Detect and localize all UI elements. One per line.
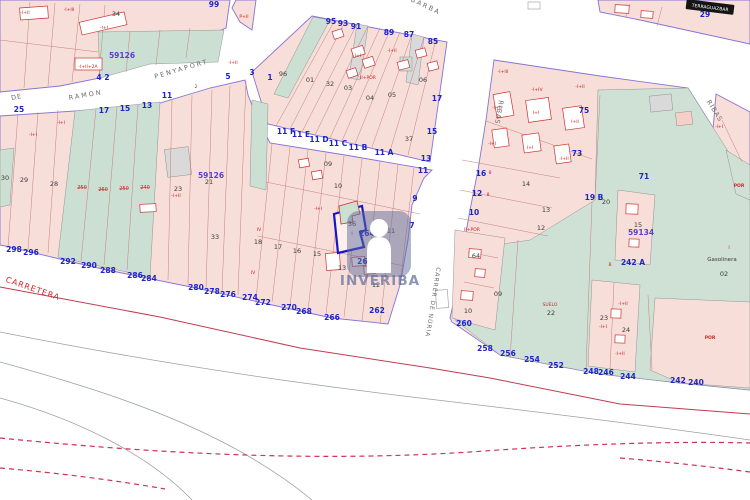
- map-label: 240: [140, 185, 150, 191]
- map-label: 250: [119, 186, 129, 192]
- map-label: 23: [600, 314, 608, 322]
- street-name-barba: BARBA: [410, 0, 443, 17]
- map-label: 288: [100, 266, 116, 275]
- map-label: 85: [428, 37, 438, 46]
- poi-gasolinera: Gasolinera: [707, 257, 736, 263]
- map-label: 25: [14, 105, 24, 114]
- map-label: 266: [324, 313, 340, 322]
- map-label: 87: [404, 30, 414, 39]
- map-label: -I+II: [20, 10, 29, 16]
- parcel-teal-center[interactable]: [250, 100, 268, 190]
- map-label: 254: [524, 355, 540, 364]
- map-label: 244: [620, 372, 636, 381]
- map-label: 22: [547, 309, 555, 317]
- map-label: 99: [209, 0, 219, 9]
- map-label: 30: [1, 174, 9, 182]
- parcel-bottom-right-por[interactable]: [650, 298, 750, 388]
- map-label: 242 A: [621, 258, 645, 267]
- map-label: -I+II+2A: [78, 64, 98, 70]
- block-code: 59134: [628, 228, 654, 237]
- map-label: -I+II: [492, 105, 501, 111]
- map-label: 01: [306, 76, 314, 84]
- map-label: 10: [464, 307, 472, 315]
- cadastral-map-viewer: BARBAPENYAPORTDERAMONRIBASRIBASCARRER DE…: [0, 0, 750, 500]
- map-label: 12: [537, 224, 545, 232]
- map-label: 13: [421, 154, 431, 163]
- parcel-pink-bit[interactable]: [675, 111, 692, 126]
- map-label: -I+IV: [531, 87, 543, 93]
- inveriba-logo-icon: [347, 211, 411, 277]
- map-label: 11 A: [375, 148, 394, 157]
- map-label: 292: [60, 257, 76, 266]
- block-code: 59126: [109, 51, 135, 60]
- map-label: 240: [688, 378, 704, 387]
- map-label: 10: [334, 182, 342, 190]
- map-label: 09: [494, 290, 502, 298]
- map-label: 296: [23, 248, 39, 257]
- map-label: 260: [456, 319, 472, 328]
- map-label: POR: [705, 335, 716, 341]
- map-label: 75: [579, 106, 589, 115]
- map-label: 298: [6, 245, 22, 254]
- map-label: 14: [522, 180, 530, 188]
- map-label: 34: [112, 10, 120, 18]
- parcel-gray-lower-left[interactable]: [164, 147, 191, 178]
- map-label: POR: [734, 183, 745, 189]
- map-label: 89: [384, 28, 394, 37]
- map-label: 260: [98, 187, 108, 193]
- map-label: 11 E: [292, 130, 310, 139]
- street-name-de-ramon: RAMON: [68, 88, 103, 102]
- map-label: 9: [412, 194, 417, 203]
- map-label: 24: [622, 326, 630, 334]
- map-label: B: [608, 262, 611, 268]
- inveriba-watermark-text: INVERIBA: [330, 273, 430, 289]
- map-label: I+I: [355, 53, 361, 59]
- map-label: I+I: [533, 110, 539, 116]
- map-label: 32: [326, 80, 334, 88]
- map-label: -I+III: [498, 69, 509, 75]
- map-label: 16: [293, 247, 301, 255]
- map-label: -I+II: [387, 48, 396, 54]
- map-label: I+I: [527, 145, 533, 151]
- map-label: -I+I: [29, 132, 37, 138]
- map-label: 5: [225, 72, 230, 81]
- map-label: 96: [279, 70, 287, 78]
- map-label: 17: [432, 94, 442, 103]
- map-label: 17: [99, 106, 109, 115]
- map-label: 93: [338, 19, 348, 28]
- map-label: -I+III: [64, 7, 75, 13]
- map-label: 250: [77, 185, 87, 191]
- map-label: 28: [50, 180, 58, 188]
- map-label: 15: [634, 221, 642, 229]
- map-label: -I+II: [615, 351, 624, 357]
- map-label: 91: [351, 22, 361, 31]
- map-label: 272: [255, 298, 271, 307]
- boundary-dashed-line: [0, 468, 165, 489]
- map-label: II+POR: [360, 75, 376, 81]
- map-label: 02: [720, 270, 728, 278]
- map-label: 262: [369, 306, 385, 315]
- map-label: 23: [174, 185, 182, 193]
- map-label: 18: [254, 238, 262, 246]
- map-label: 13: [142, 101, 152, 110]
- map-label: 16: [476, 169, 486, 178]
- map-label: 95: [326, 17, 336, 26]
- map-label: 256: [500, 349, 516, 358]
- map-label: 11: [418, 166, 428, 175]
- map-label: -I+I: [100, 25, 108, 31]
- map-label: 29: [20, 176, 28, 184]
- parcel-columns-23-24[interactable]: [588, 280, 640, 372]
- inveriba-watermark-badge: [347, 211, 411, 277]
- map-label: 248: [583, 367, 599, 376]
- map-label: 73: [572, 149, 582, 158]
- map-label: 29: [700, 10, 710, 19]
- map-label: 2: [195, 84, 198, 90]
- boundary-dashed-line: [620, 458, 750, 472]
- map-label: 3: [249, 68, 254, 77]
- map-label: 13: [542, 206, 550, 214]
- map-label: 06: [419, 76, 427, 84]
- map-label: 8: [487, 192, 490, 198]
- map-label: 8: [489, 170, 492, 176]
- map-label: 12: [472, 189, 482, 198]
- map-label: 290: [81, 261, 97, 270]
- map-label: 11 D: [309, 135, 328, 144]
- map-label: 276: [220, 290, 236, 299]
- map-label: 1: [267, 73, 272, 82]
- map-label: 270: [281, 303, 297, 312]
- map-label: 278: [204, 287, 220, 296]
- map-label: 04: [366, 94, 374, 102]
- map-label: 21: [205, 178, 213, 186]
- map-label: 11: [162, 91, 172, 100]
- map-label: 15: [313, 250, 321, 258]
- street-name-de-ramon: DE: [10, 92, 22, 102]
- map-label: 13: [338, 264, 346, 272]
- map-label: I: [728, 245, 729, 251]
- map-label: -I+I: [314, 206, 322, 212]
- boundary-dashed-line: [0, 438, 750, 456]
- map-label: -I+II: [575, 84, 584, 90]
- map-label: -I+II: [559, 156, 568, 162]
- map-label: 10: [469, 208, 479, 217]
- map-label: 20: [602, 198, 610, 206]
- map-label: 19 B: [585, 193, 604, 202]
- map-label: 17: [274, 243, 282, 251]
- map-label: 09: [324, 160, 332, 168]
- map-label: -I+I: [715, 124, 723, 130]
- map-label: 2: [104, 73, 109, 82]
- map-label: 37: [405, 135, 413, 143]
- map-label: 64: [472, 252, 480, 260]
- map-label: 05: [388, 91, 396, 99]
- map-label: -I+II: [228, 60, 237, 66]
- map-label: SUELO: [543, 302, 558, 308]
- map-label: 11 C: [329, 139, 348, 148]
- map-label: 03: [344, 84, 352, 92]
- map-label: -I+II: [171, 193, 180, 199]
- map-label: 33: [211, 233, 219, 241]
- map-label: P+II: [239, 14, 248, 20]
- map-label: 15: [427, 127, 437, 136]
- map-label: 284: [141, 274, 157, 283]
- map-label: I+II: [571, 119, 579, 125]
- map-label: 242: [670, 376, 686, 385]
- parcel-gray-bit[interactable]: [649, 94, 673, 112]
- map-label: 71: [639, 172, 649, 181]
- map-label: -I+I: [599, 324, 607, 330]
- map-label: 4: [96, 73, 101, 82]
- map-label: -I+II: [618, 301, 627, 307]
- map-label: 268: [296, 307, 312, 316]
- street-name-carretera: CARRETERA: [4, 275, 61, 302]
- map-label: -I+I: [57, 120, 65, 126]
- map-label: 252: [548, 361, 564, 370]
- map-label: 258: [477, 344, 493, 353]
- map-label: -I+I: [488, 141, 496, 147]
- map-label: 15: [120, 104, 130, 113]
- map-label: 246: [598, 368, 614, 377]
- street-furniture: [528, 2, 540, 9]
- map-label: 11 B: [349, 143, 368, 152]
- map-label: II+POR: [464, 227, 480, 233]
- map-label: 280: [188, 283, 204, 292]
